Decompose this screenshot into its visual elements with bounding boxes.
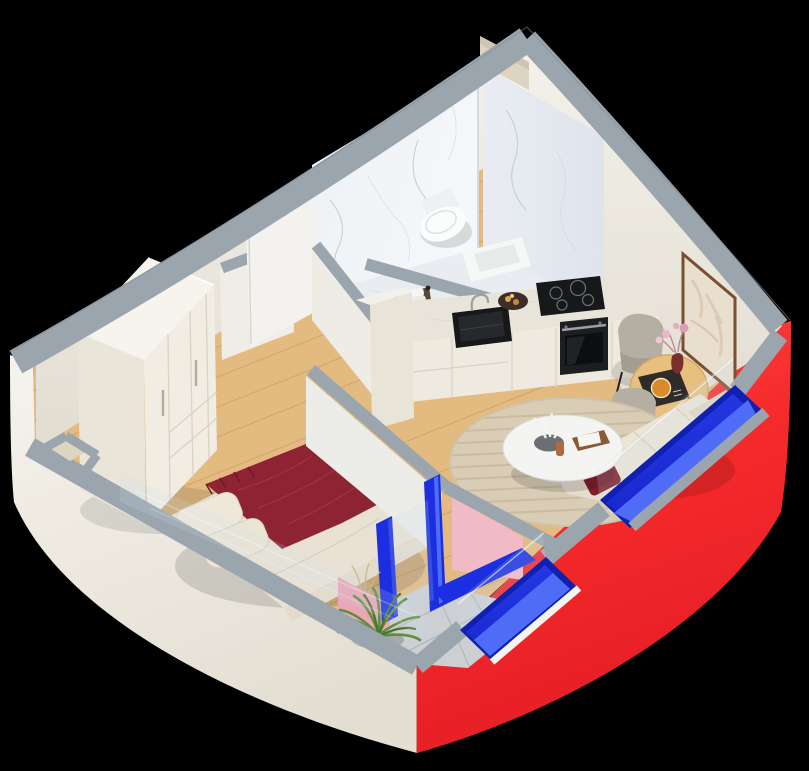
induction-hob xyxy=(536,276,605,316)
bottle xyxy=(426,286,431,291)
apartment-render xyxy=(0,0,809,771)
decor-vase xyxy=(556,441,564,456)
floorplan-svg xyxy=(0,0,809,771)
serving-board xyxy=(498,292,528,310)
built-in-oven xyxy=(560,317,608,375)
counter-end-block xyxy=(370,292,414,430)
